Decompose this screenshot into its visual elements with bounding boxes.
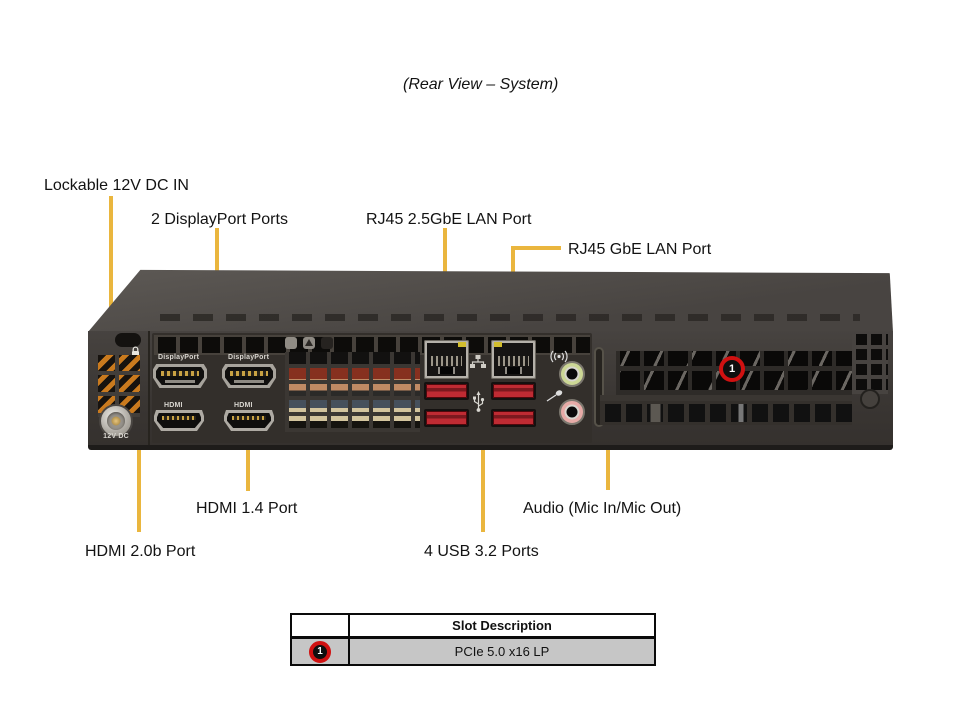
callout-label-displayport: 2 DisplayPort Ports (151, 211, 288, 229)
callout-label-lan-gbe: RJ45 GbE LAN Port (568, 241, 711, 259)
thumbscrew (860, 389, 880, 409)
silkscreen-displayport-1: DisplayPort (158, 354, 199, 361)
motherboard-vent-grid (285, 352, 420, 432)
callout-label-audio: Audio (Mic In/Mic Out) (523, 500, 681, 518)
silkscreen-displayport-2: DisplayPort (228, 354, 269, 361)
usb-port-3 (491, 382, 536, 400)
callout-label-dc-in: Lockable 12V DC IN (44, 177, 189, 195)
io-panel: DisplayPort DisplayPort HDMI HDMI (152, 333, 592, 443)
callout-label-hdmi20b: HDMI 2.0b Port (85, 543, 195, 561)
hdmi-1-4-port (224, 410, 274, 431)
usb-port-2 (424, 409, 469, 427)
callout-label-usb: 4 USB 3.2 Ports (424, 543, 539, 561)
network-icon (470, 355, 486, 369)
lan-port-2-5gbe (424, 340, 469, 379)
audio-mic-jack (559, 399, 585, 425)
top-cover-vents (160, 314, 860, 321)
figure-title: (Rear View – System) (403, 76, 558, 94)
usb-port-1 (424, 382, 469, 400)
slot-table-header-row: Slot Description (290, 613, 656, 639)
silkscreen-hdmi-2: HDMI (234, 402, 253, 409)
audio-line-out-jack (559, 361, 585, 387)
slot-marker-cell: 1 (292, 639, 350, 664)
displayport-port-1 (153, 364, 207, 388)
kensington-slot (115, 333, 141, 347)
displayport-port-2 (222, 364, 276, 388)
lower-slot-grille (600, 401, 852, 425)
chassis-rear-panel: 12V DC DisplayPort DisplayPort HDMI HDMI (88, 331, 893, 445)
slot-table-marker-header (292, 615, 350, 636)
table-row: 1 PCIe 5.0 x16 LP (290, 639, 656, 666)
side-vent-grid (852, 334, 888, 394)
slot-marker-1-table: 1 (309, 641, 331, 663)
dc-jack-barrel (107, 412, 125, 430)
silkscreen-hdmi-1: HDMI (164, 402, 183, 409)
rear-view-figure: (Rear View – System) Lockable 12V DC IN … (0, 0, 960, 720)
callout-line-hdmi20b (137, 444, 141, 532)
usb-port-4 (491, 409, 536, 427)
silkscreen-12v-dc: 12V DC (96, 433, 136, 440)
usb-icon (472, 391, 485, 413)
slot-table: Slot Description 1 PCIe 5.0 x16 LP (290, 613, 656, 666)
certification-mark-icon (285, 337, 297, 349)
hdmi-2-0b-port (154, 410, 204, 431)
callout-label-lan-2-5gbe: RJ45 2.5GbE LAN Port (366, 211, 531, 229)
mic-icon (546, 389, 564, 402)
chassis-base (88, 445, 893, 450)
lan-port-gbe (491, 340, 536, 379)
panel-divider (148, 331, 150, 445)
slot-marker-1: 1 (719, 356, 745, 382)
slot-table-header: Slot Description (350, 615, 654, 636)
dc-jack-pin (112, 417, 121, 426)
certification-mark-icon (303, 337, 315, 349)
chassis-top-cover (88, 268, 893, 332)
callout-line-lan-gbe-h (511, 246, 561, 250)
callout-label-hdmi14: HDMI 1.4 Port (196, 500, 297, 518)
slot-description-cell: PCIe 5.0 x16 LP (350, 639, 654, 664)
certification-mark-icon (321, 337, 333, 349)
